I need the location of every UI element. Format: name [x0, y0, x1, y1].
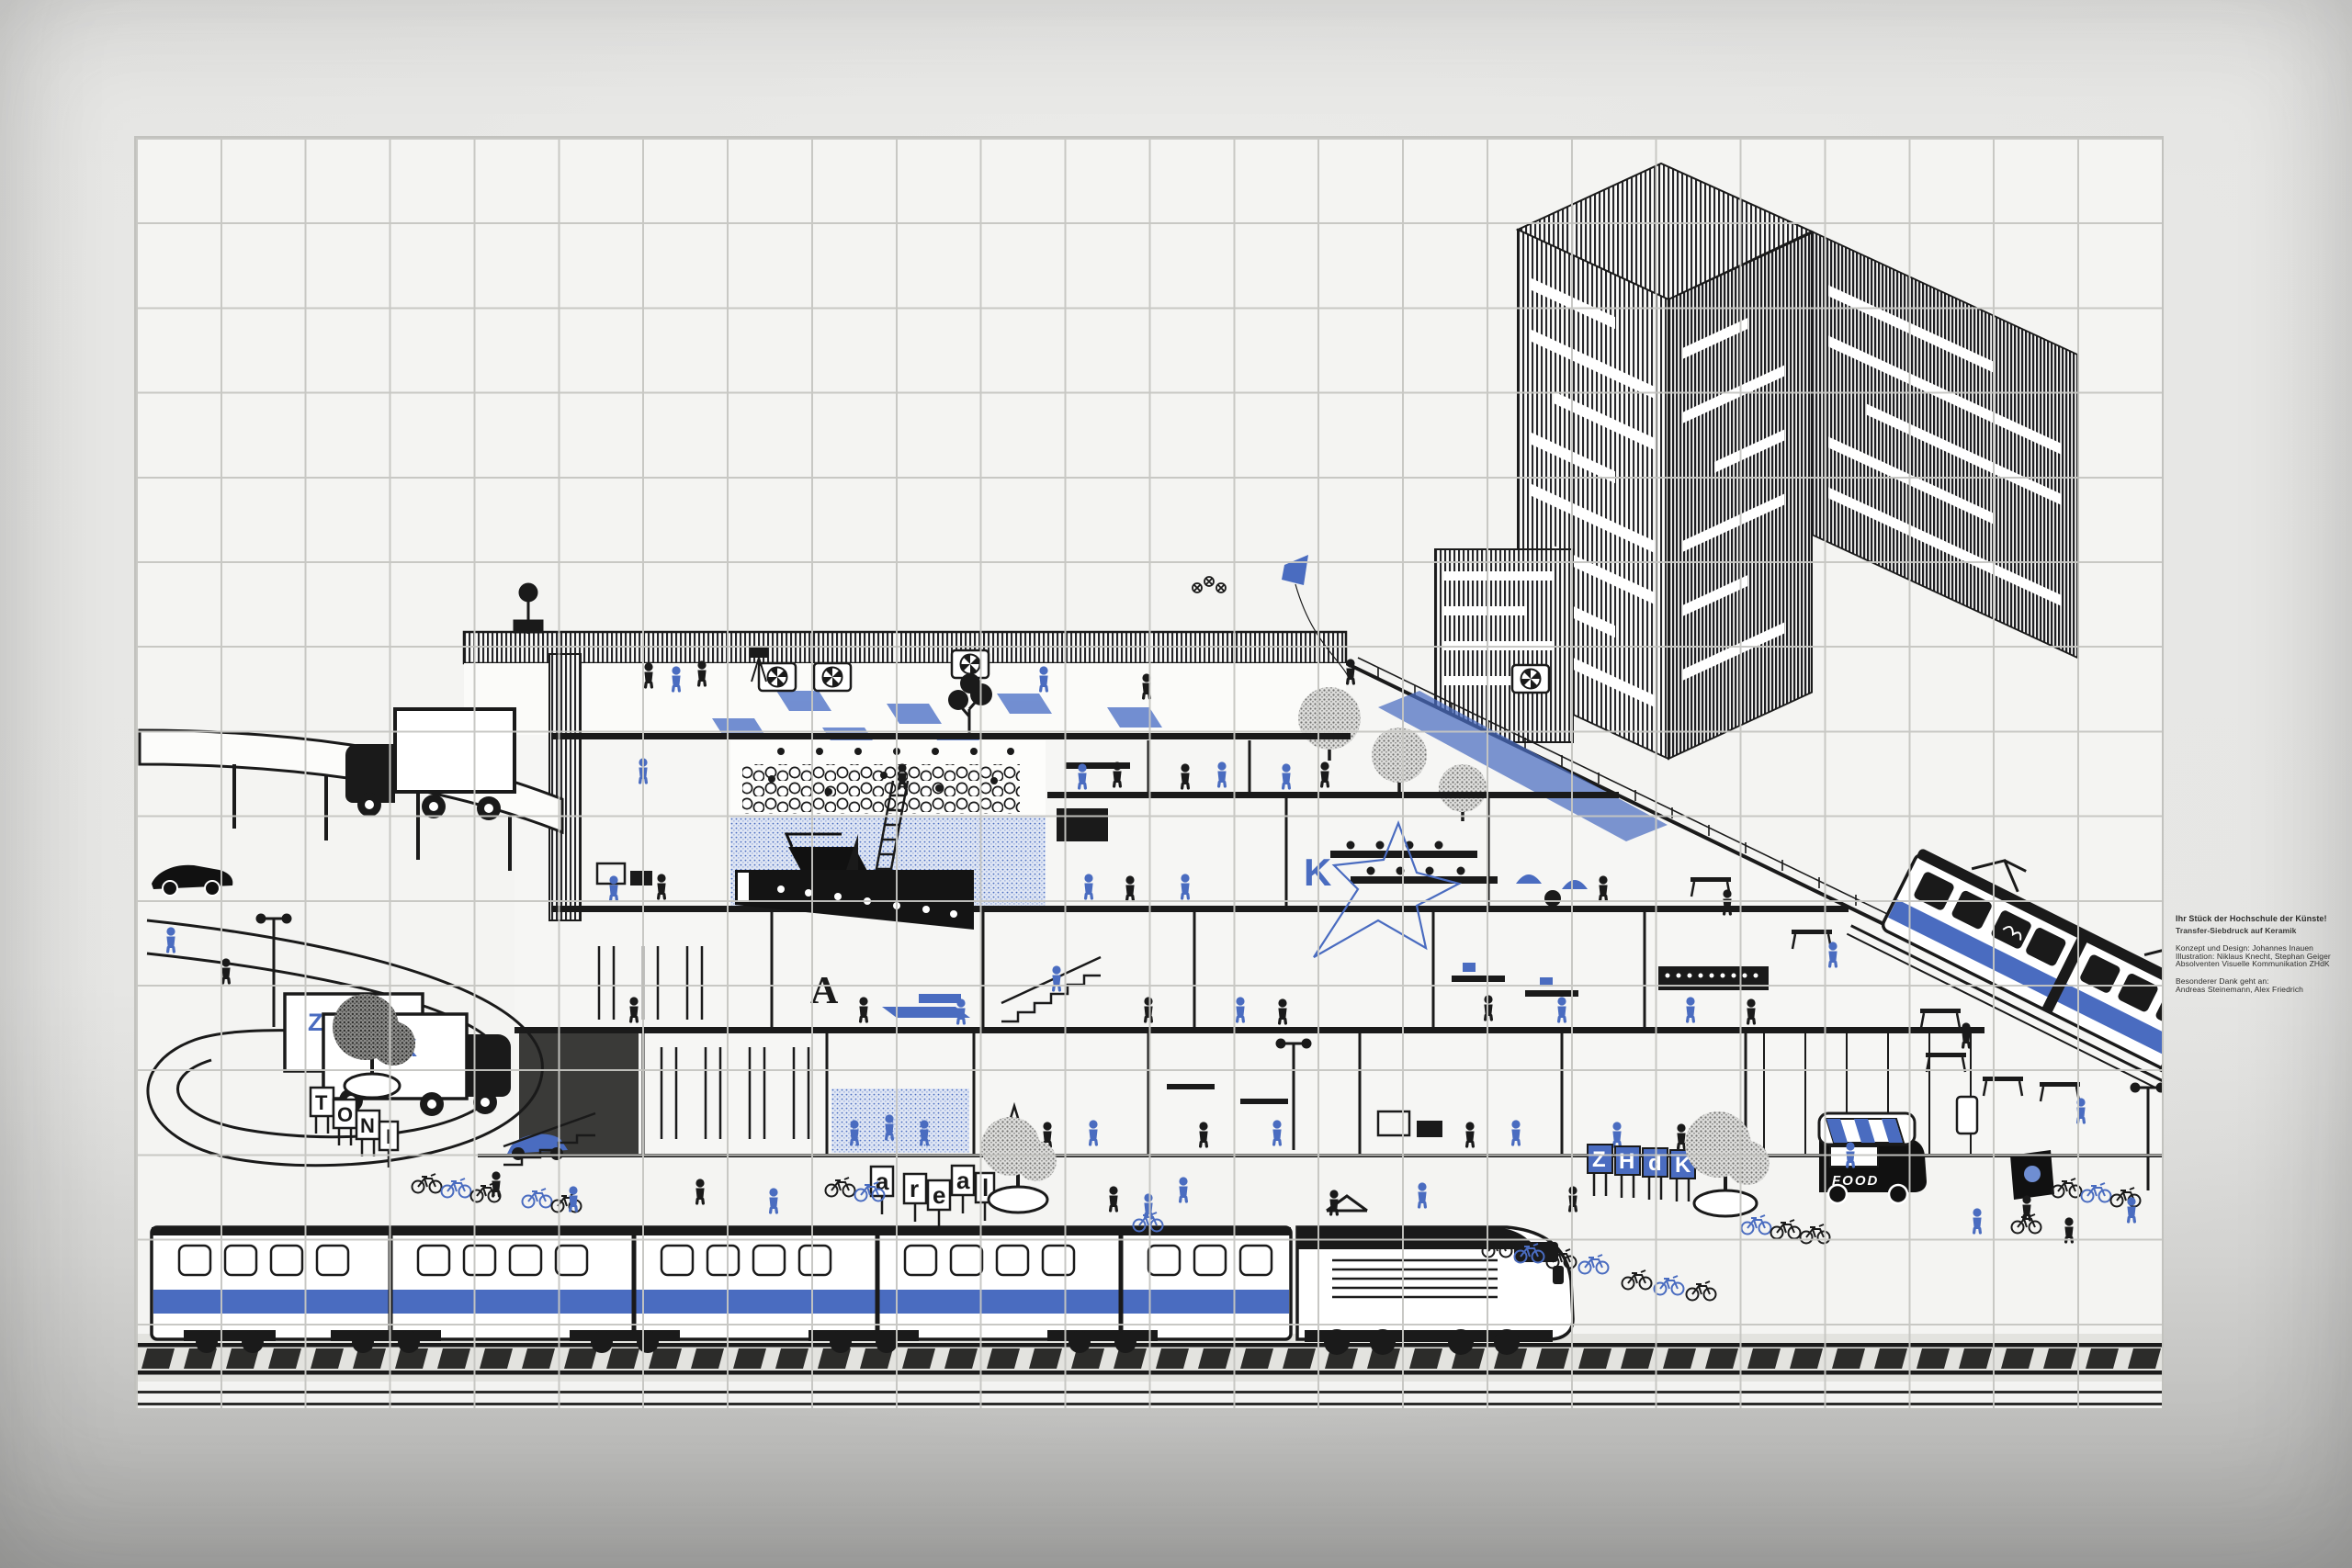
- food-truck-awning: [1826, 1119, 1904, 1143]
- artwork-subtitle: Transfer-Siebdruck auf Keramik: [2176, 927, 2334, 935]
- zhdk-sign: Z H d K: [1568, 1145, 1695, 1211]
- cyclist: [2012, 1195, 2041, 1233]
- credit-line: Absolventen Visuelle Kommunikation ZHdK: [2176, 960, 2334, 968]
- areal-letter: r: [910, 1175, 919, 1202]
- locomotive: [1297, 1196, 1573, 1355]
- areal-letter: e: [933, 1181, 945, 1209]
- tile-mural: K: [136, 138, 2162, 1408]
- drone-icon: [1193, 577, 1226, 592]
- areal-letter: a: [956, 1167, 970, 1194]
- trash-bin: [1957, 1097, 1977, 1134]
- photo-of-tile-mural: K: [0, 0, 2352, 1568]
- roof-antenna: [514, 584, 542, 634]
- zhdk-letter: H: [1619, 1149, 1634, 1174]
- artwork-title: Ihr Stück der Hochschule der Künste!: [2176, 915, 2334, 923]
- wall-letter-k: K: [1304, 851, 1331, 894]
- areal-sign: a r e a l: [871, 1166, 994, 1228]
- toni-letter: T: [315, 1091, 328, 1114]
- train-coaches: [152, 1227, 1291, 1353]
- train: [136, 1196, 2162, 1405]
- roof-fence: [464, 632, 1346, 663]
- delivery-truck: [345, 709, 514, 820]
- roof-fan-icon: [814, 663, 851, 691]
- poster-board: [2010, 1150, 2054, 1200]
- mural-illustration: K: [136, 138, 2162, 1408]
- zhdk-letter: Z: [1592, 1147, 1606, 1172]
- roof-fan-icon: [1512, 665, 1549, 693]
- zhdk-letter: d: [1648, 1151, 1662, 1176]
- auditorium-seats: [742, 764, 1020, 814]
- toni-letter: N: [360, 1114, 375, 1137]
- hall-letter-a: A: [810, 970, 839, 1012]
- car: [152, 865, 232, 896]
- toni-letter: I: [386, 1125, 391, 1148]
- credit-text-block: Ihr Stück der Hochschule der Künste! Tra…: [2176, 915, 2334, 993]
- toni-letter: O: [337, 1103, 353, 1126]
- thanks-line: Andreas Steinemann, Alex Friedrich: [2176, 986, 2334, 994]
